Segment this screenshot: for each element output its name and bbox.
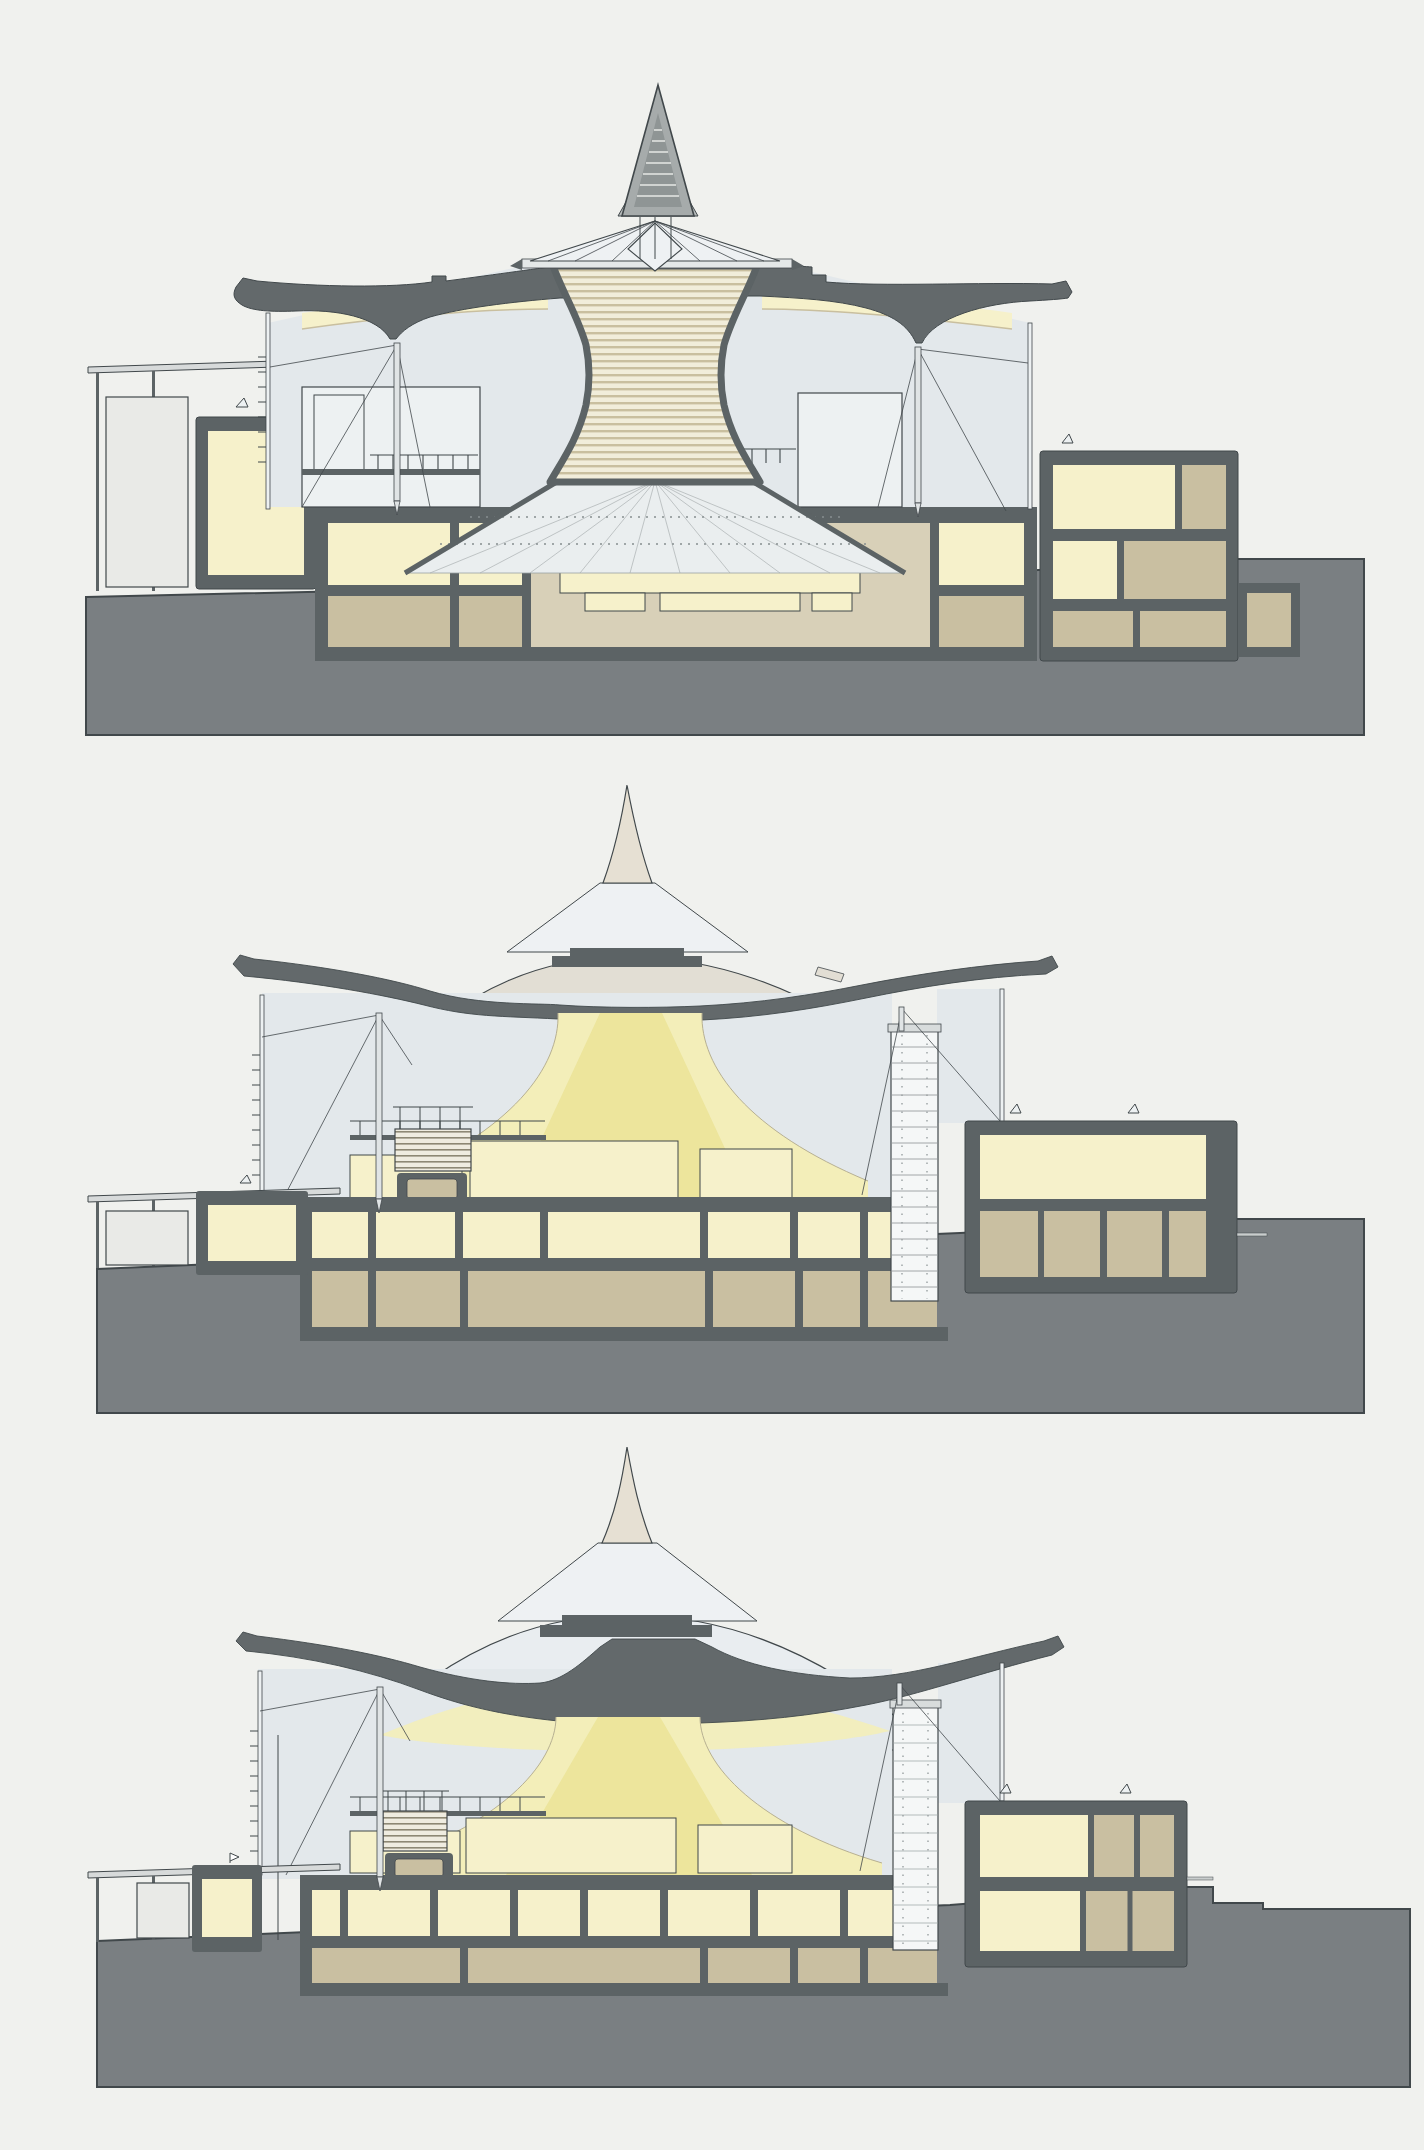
roof-vent: [1062, 434, 1073, 443]
fly-tower: [888, 1024, 941, 1301]
louvered-spire: [618, 85, 698, 216]
ledge: [1237, 1233, 1267, 1236]
basement-room: [1247, 593, 1291, 647]
room: [980, 1815, 1088, 1877]
room: [1169, 1211, 1206, 1277]
roof-vent: [1000, 1784, 1131, 1793]
roof-flag: [230, 1853, 239, 1863]
roof-vent: [236, 398, 248, 407]
substructure: [300, 1197, 948, 1341]
roof-vent: [240, 1175, 251, 1183]
ground-floor-rooms: [312, 1890, 894, 1936]
canopy-post: [96, 373, 99, 591]
roof-vent: [1010, 1104, 1139, 1113]
entrance-pavilion: [106, 397, 188, 587]
room: [1124, 541, 1226, 599]
apex-collar: [540, 1615, 712, 1637]
room: [939, 523, 1024, 585]
side-interior: [937, 989, 1003, 1123]
section-3-panel: [0, 1435, 1424, 2150]
section-3-drawing: [0, 1435, 1424, 2150]
section-1-drawing: [0, 55, 1424, 755]
entrance-pavilion: [137, 1883, 189, 1938]
section-1-panel: [0, 55, 1424, 755]
apex-collar: [552, 948, 702, 967]
room: [1094, 1815, 1134, 1877]
spire: [603, 785, 652, 883]
room: [980, 1891, 1080, 1951]
basement-room: [328, 596, 450, 647]
basement-room: [1140, 611, 1226, 647]
right-annex: [965, 1784, 1213, 1967]
basement-rooms: [312, 1948, 937, 1983]
upper-cone: [507, 883, 748, 952]
room: [328, 523, 450, 585]
room: [1182, 465, 1226, 529]
ground-floor-rooms: [312, 1212, 894, 1258]
fly-tower: [890, 1700, 941, 1950]
section-2-drawing: [0, 755, 1424, 1435]
basement-room: [1053, 611, 1133, 647]
lattice-cone: [510, 217, 804, 271]
left-entrance-canopy: [88, 1175, 340, 1275]
section-2-panel: [0, 755, 1424, 1435]
substructure: [300, 1875, 948, 1996]
stage-machinery: [560, 567, 860, 611]
room: [1053, 541, 1117, 599]
room: [1053, 465, 1175, 529]
room: [1140, 1815, 1174, 1877]
drawing-sheet: [0, 0, 1424, 2150]
room: [1107, 1211, 1162, 1277]
upper-cone: [498, 1543, 757, 1621]
right-annex: [1040, 434, 1300, 661]
spire: [602, 1447, 652, 1543]
ledge: [1187, 1877, 1213, 1880]
right-annex: [965, 1104, 1267, 1293]
room: [980, 1135, 1206, 1199]
skylight-tab: [815, 967, 844, 982]
entrance-pavilion: [106, 1211, 188, 1265]
basement-room: [939, 596, 1024, 647]
basement-room: [459, 596, 522, 647]
basement-rooms: [312, 1271, 937, 1327]
